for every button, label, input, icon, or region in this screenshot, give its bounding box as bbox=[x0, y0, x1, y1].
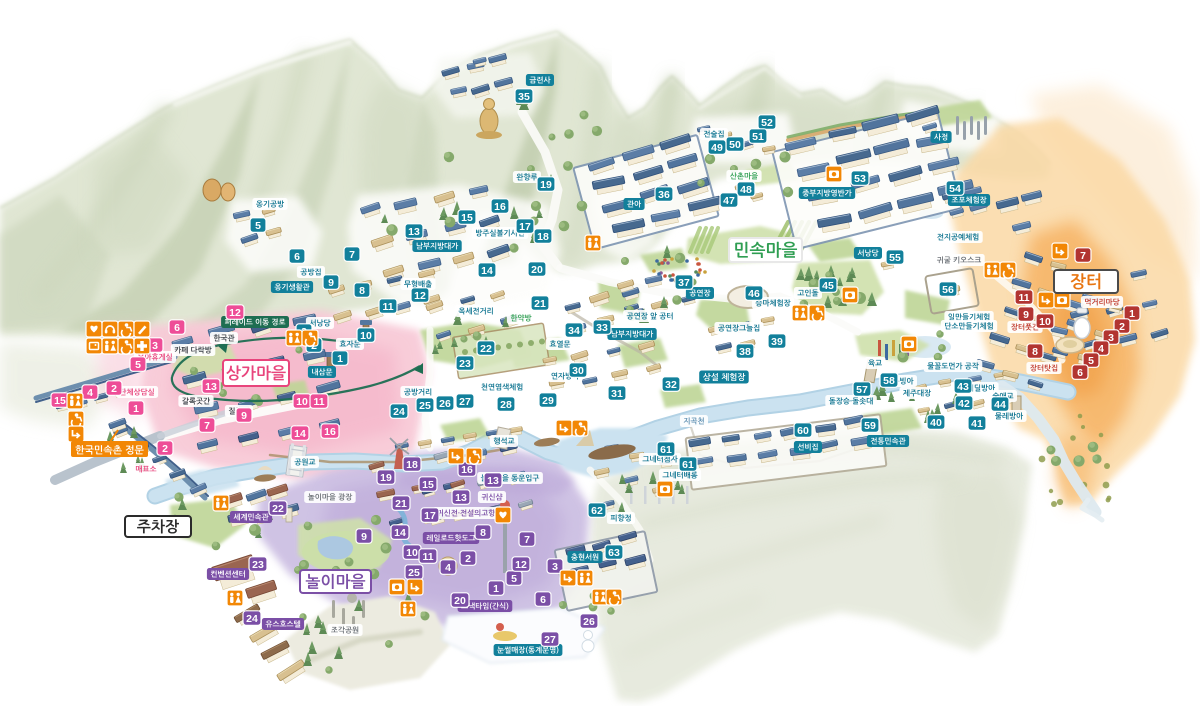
svg-text:4: 4 bbox=[87, 387, 93, 399]
svg-text:13: 13 bbox=[487, 475, 499, 487]
svg-text:7: 7 bbox=[204, 420, 210, 432]
svg-text:2: 2 bbox=[465, 553, 471, 565]
svg-text:1: 1 bbox=[133, 403, 139, 415]
svg-text:6: 6 bbox=[174, 322, 180, 334]
svg-text:6: 6 bbox=[540, 594, 546, 606]
svg-text:62: 62 bbox=[591, 505, 603, 517]
svg-text:4: 4 bbox=[445, 562, 451, 574]
svg-text:15: 15 bbox=[54, 395, 66, 407]
svg-text:9: 9 bbox=[1023, 309, 1029, 321]
svg-text:21: 21 bbox=[534, 298, 546, 310]
svg-text:19: 19 bbox=[380, 472, 392, 484]
svg-text:9: 9 bbox=[241, 410, 247, 422]
svg-text:42: 42 bbox=[958, 398, 970, 410]
svg-text:13: 13 bbox=[455, 492, 467, 504]
svg-text:11: 11 bbox=[313, 396, 324, 408]
svg-text:2: 2 bbox=[162, 443, 168, 455]
svg-text:1: 1 bbox=[1129, 308, 1135, 320]
svg-text:58: 58 bbox=[883, 375, 895, 387]
svg-text:7: 7 bbox=[524, 534, 530, 546]
svg-text:27: 27 bbox=[544, 634, 556, 646]
svg-text:46: 46 bbox=[748, 288, 760, 300]
svg-text:31: 31 bbox=[611, 388, 623, 400]
svg-text:15: 15 bbox=[422, 479, 434, 491]
svg-text:35: 35 bbox=[518, 91, 530, 103]
svg-text:12: 12 bbox=[414, 290, 426, 302]
svg-text:9: 9 bbox=[328, 277, 334, 289]
svg-text:23: 23 bbox=[459, 358, 471, 370]
svg-text:13: 13 bbox=[205, 381, 217, 393]
svg-text:32: 32 bbox=[665, 379, 677, 391]
svg-text:26: 26 bbox=[439, 398, 451, 410]
svg-text:3: 3 bbox=[152, 340, 158, 352]
svg-text:24: 24 bbox=[393, 406, 405, 418]
svg-text:43: 43 bbox=[957, 381, 969, 393]
svg-text:22: 22 bbox=[480, 343, 492, 355]
svg-text:22: 22 bbox=[272, 503, 284, 515]
svg-text:16: 16 bbox=[324, 426, 336, 438]
svg-text:28: 28 bbox=[500, 399, 512, 411]
svg-text:18: 18 bbox=[537, 231, 549, 243]
svg-text:10: 10 bbox=[406, 547, 418, 559]
svg-text:12: 12 bbox=[515, 559, 527, 571]
svg-text:48: 48 bbox=[740, 184, 752, 196]
svg-text:56: 56 bbox=[942, 284, 954, 296]
svg-text:40: 40 bbox=[930, 417, 942, 429]
svg-text:21: 21 bbox=[395, 498, 407, 510]
svg-text:18: 18 bbox=[406, 459, 418, 471]
svg-text:20: 20 bbox=[454, 595, 466, 607]
svg-text:10: 10 bbox=[1039, 316, 1051, 328]
svg-text:11: 11 bbox=[422, 551, 433, 563]
svg-text:9: 9 bbox=[361, 531, 367, 543]
svg-text:2: 2 bbox=[111, 383, 117, 395]
svg-text:3: 3 bbox=[552, 561, 558, 573]
svg-text:16: 16 bbox=[461, 464, 473, 476]
svg-text:7: 7 bbox=[1080, 250, 1086, 262]
svg-text:47: 47 bbox=[723, 195, 735, 207]
svg-text:23: 23 bbox=[252, 559, 264, 571]
svg-text:8: 8 bbox=[359, 285, 365, 297]
svg-text:39: 39 bbox=[771, 336, 783, 348]
svg-text:8: 8 bbox=[480, 527, 486, 539]
svg-text:25: 25 bbox=[408, 567, 420, 579]
svg-text:37: 37 bbox=[678, 277, 690, 289]
svg-text:11: 11 bbox=[382, 301, 393, 313]
svg-text:26: 26 bbox=[583, 616, 595, 628]
svg-text:54: 54 bbox=[949, 183, 961, 195]
svg-text:33: 33 bbox=[596, 322, 608, 334]
svg-text:6: 6 bbox=[1077, 367, 1083, 379]
svg-text:12: 12 bbox=[229, 307, 241, 319]
svg-text:16: 16 bbox=[494, 201, 506, 213]
svg-text:38: 38 bbox=[739, 346, 751, 358]
svg-text:13: 13 bbox=[408, 226, 420, 238]
svg-text:4: 4 bbox=[1098, 343, 1104, 355]
svg-text:17: 17 bbox=[519, 221, 531, 233]
svg-text:59: 59 bbox=[864, 420, 876, 432]
svg-text:52: 52 bbox=[761, 117, 773, 129]
svg-text:1: 1 bbox=[337, 353, 343, 365]
svg-text:57: 57 bbox=[856, 384, 868, 396]
svg-text:34: 34 bbox=[568, 325, 580, 337]
svg-text:41: 41 bbox=[971, 418, 983, 430]
svg-text:5: 5 bbox=[1088, 355, 1094, 367]
svg-text:14: 14 bbox=[294, 428, 306, 440]
svg-text:51: 51 bbox=[752, 131, 764, 143]
svg-text:63: 63 bbox=[608, 547, 620, 559]
svg-text:6: 6 bbox=[294, 251, 300, 263]
svg-text:19: 19 bbox=[540, 179, 552, 191]
svg-text:14: 14 bbox=[394, 527, 406, 539]
svg-text:7: 7 bbox=[349, 249, 355, 261]
svg-text:29: 29 bbox=[542, 395, 554, 407]
svg-text:50: 50 bbox=[729, 139, 741, 151]
svg-text:27: 27 bbox=[459, 396, 471, 408]
svg-text:5: 5 bbox=[135, 359, 141, 371]
svg-text:44: 44 bbox=[994, 399, 1006, 411]
svg-text:61: 61 bbox=[682, 459, 694, 471]
svg-text:30: 30 bbox=[572, 365, 584, 377]
svg-text:25: 25 bbox=[419, 400, 431, 412]
svg-text:14: 14 bbox=[481, 265, 493, 277]
svg-text:17: 17 bbox=[424, 510, 436, 522]
svg-text:1: 1 bbox=[493, 583, 499, 595]
svg-text:11: 11 bbox=[1018, 292, 1029, 304]
svg-text:61: 61 bbox=[660, 444, 672, 456]
svg-text:8: 8 bbox=[1032, 346, 1038, 358]
svg-text:15: 15 bbox=[461, 212, 473, 224]
svg-text:5: 5 bbox=[511, 573, 517, 585]
svg-text:36: 36 bbox=[658, 189, 670, 201]
svg-text:60: 60 bbox=[797, 425, 809, 437]
svg-text:45: 45 bbox=[822, 280, 834, 292]
svg-text:53: 53 bbox=[854, 173, 866, 185]
svg-text:20: 20 bbox=[531, 264, 543, 276]
svg-text:5: 5 bbox=[255, 220, 261, 232]
svg-text:2: 2 bbox=[1119, 321, 1125, 333]
svg-text:49: 49 bbox=[711, 142, 723, 154]
svg-text:10: 10 bbox=[296, 396, 308, 408]
svg-text:55: 55 bbox=[889, 252, 901, 264]
svg-text:10: 10 bbox=[360, 330, 372, 342]
svg-text:24: 24 bbox=[246, 613, 258, 625]
